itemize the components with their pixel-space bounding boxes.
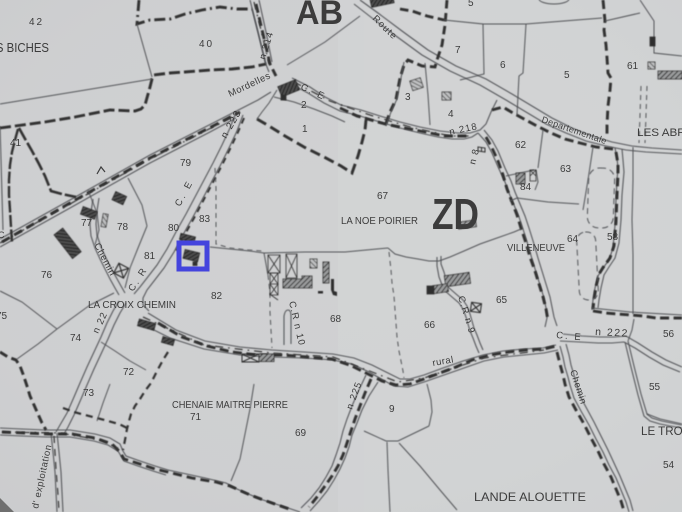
svg-text:VILLENEUVE: VILLENEUVE [507,242,565,254]
svg-text:LANDE ALOUETTE: LANDE ALOUETTE [474,490,586,504]
svg-text:5: 5 [564,70,570,81]
svg-text:66: 66 [424,320,436,331]
svg-text:67: 67 [377,191,389,202]
svg-text:C: C [0,230,5,240]
svg-text:41: 41 [10,138,22,149]
svg-text:54: 54 [663,460,675,471]
svg-text:3: 3 [405,92,411,103]
svg-text:LES BICHES: LES BICHES [0,41,49,55]
svg-text:63: 63 [560,164,572,175]
svg-text:LE TRON: LE TRON [641,424,682,438]
svg-text:73: 73 [83,388,95,399]
svg-text:61: 61 [627,61,639,72]
svg-text:64: 64 [567,234,579,245]
svg-text:81: 81 [144,251,156,262]
svg-text:71: 71 [190,412,202,423]
svg-text:6: 6 [500,60,506,71]
svg-text:LA CROIX CHEMIN: LA CROIX CHEMIN [88,299,176,311]
svg-text:58: 58 [607,232,619,243]
svg-text:42: 42 [29,17,44,28]
svg-text:68: 68 [330,314,342,325]
svg-text:LES ABRI: LES ABRI [637,127,682,139]
svg-text:4: 4 [448,109,454,120]
svg-text:1: 1 [302,124,308,135]
svg-text:AB: AB [296,0,343,32]
svg-text:CHENAIE MAITRE PIERRE: CHENAIE MAITRE PIERRE [172,399,288,411]
svg-text:69: 69 [295,428,307,439]
svg-text:78: 78 [117,222,129,233]
svg-text:C. E: C. E [556,330,583,343]
svg-text:83: 83 [199,214,211,225]
svg-text:65: 65 [496,295,508,306]
svg-text:75: 75 [0,311,8,322]
svg-text:62: 62 [515,140,527,151]
svg-text:LA NOE POIRIER: LA NOE POIRIER [341,215,418,227]
svg-text:74: 74 [70,333,82,344]
svg-text:9: 9 [389,404,395,415]
svg-text:80: 80 [168,223,180,234]
svg-text:40: 40 [199,39,214,50]
svg-text:ZD: ZD [432,190,479,239]
svg-text:84: 84 [520,182,532,193]
svg-text:79: 79 [180,158,192,169]
svg-text:n 222: n 222 [595,326,629,340]
svg-text:7: 7 [455,45,461,56]
svg-text:5: 5 [468,0,474,9]
svg-text:56: 56 [663,329,675,340]
svg-text:77: 77 [81,218,93,229]
svg-text:82: 82 [211,291,223,302]
svg-text:76: 76 [41,270,53,281]
svg-text:55: 55 [649,382,661,393]
svg-text:2: 2 [301,100,307,111]
svg-text:72: 72 [123,367,135,378]
